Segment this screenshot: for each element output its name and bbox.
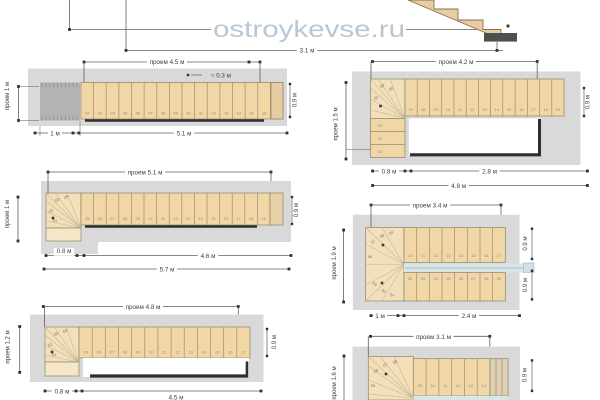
svg-text:5.7 м: 5.7 м — [160, 267, 175, 274]
svg-text:16: 16 — [224, 216, 229, 221]
svg-text:10: 10 — [430, 383, 435, 388]
svg-text:04: 04 — [110, 111, 115, 116]
svg-text:0.9 м: 0.9 м — [523, 278, 529, 292]
svg-text:13: 13 — [482, 107, 487, 112]
svg-text:02: 02 — [378, 136, 383, 141]
svg-text:10: 10 — [446, 107, 451, 112]
svg-text:07: 07 — [471, 276, 476, 281]
svg-text:14: 14 — [459, 253, 464, 258]
svg-text:проем 1 м: проем 1 м — [5, 200, 11, 228]
svg-text:02: 02 — [408, 276, 413, 281]
svg-text:15: 15 — [249, 111, 254, 116]
svg-text:08: 08 — [123, 350, 128, 355]
svg-text:2.4 м: 2.4 м — [462, 313, 477, 320]
svg-text:≈ 0.3 м: ≈ 0.3 м — [211, 73, 231, 80]
svg-text:08: 08 — [161, 111, 166, 116]
svg-text:03: 03 — [421, 276, 426, 281]
svg-text:17: 17 — [497, 253, 502, 258]
svg-text:19: 19 — [261, 216, 266, 221]
svg-text:12: 12 — [470, 107, 475, 112]
svg-text:проем 1.2 м: проем 1.2 м — [6, 330, 12, 363]
svg-text:4.5 м: 4.5 м — [169, 395, 184, 400]
svg-text:09: 09 — [497, 276, 502, 281]
svg-text:4.8 м: 4.8 м — [451, 183, 466, 190]
svg-text:0.9 м: 0.9 м — [293, 93, 299, 107]
svg-text:0.8 м: 0.8 м — [55, 389, 70, 396]
svg-text:18: 18 — [249, 216, 254, 221]
svg-text:проем 1 м: проем 1 м — [5, 82, 11, 110]
svg-text:12: 12 — [456, 383, 461, 388]
svg-text:13: 13 — [189, 350, 194, 355]
svg-text:0.9 м: 0.9 м — [586, 95, 592, 109]
svg-text:09: 09 — [136, 350, 141, 355]
svg-text:13: 13 — [224, 111, 229, 116]
svg-text:08: 08 — [421, 107, 426, 112]
svg-text:06: 06 — [96, 350, 101, 355]
svg-text:проем 1.9 м: проем 1.9 м — [332, 246, 338, 279]
svg-text:проем 1.5 м: проем 1.5 м — [334, 107, 340, 140]
svg-text:10: 10 — [148, 216, 153, 221]
svg-text:05: 05 — [123, 111, 128, 116]
svg-text:12: 12 — [175, 350, 180, 355]
svg-text:1 м: 1 м — [50, 131, 60, 138]
svg-text:16: 16 — [262, 111, 267, 116]
svg-text:03: 03 — [378, 123, 383, 128]
svg-text:01: 01 — [378, 149, 383, 154]
svg-text:05: 05 — [83, 350, 88, 355]
svg-text:08: 08 — [484, 276, 489, 281]
svg-text:09: 09 — [173, 111, 178, 116]
svg-text:10: 10 — [149, 350, 154, 355]
svg-text:10: 10 — [186, 111, 191, 116]
svg-text:проем 4.8 м: проем 4.8 м — [126, 304, 161, 311]
svg-text:проем 3.1 м: проем 3.1 м — [416, 334, 451, 341]
svg-text:0.9 м: 0.9 м — [523, 368, 529, 382]
svg-text:4.6 м: 4.6 м — [201, 253, 216, 260]
svg-text:04: 04 — [433, 276, 438, 281]
svg-text:07: 07 — [110, 216, 115, 221]
svg-text:15: 15 — [211, 216, 216, 221]
svg-text:12: 12 — [173, 216, 178, 221]
svg-text:09: 09 — [417, 383, 422, 388]
svg-text:10: 10 — [408, 253, 413, 258]
svg-text:05: 05 — [446, 276, 451, 281]
svg-text:проем 1.6 м: проем 1.6 м — [332, 366, 338, 399]
svg-text:5.1 м: 5.1 м — [177, 131, 192, 138]
svg-text:14: 14 — [481, 383, 486, 388]
svg-text:0.9 м: 0.9 м — [523, 236, 529, 250]
svg-text:0.9 м: 0.9 м — [272, 335, 278, 349]
svg-text:06: 06 — [98, 216, 103, 221]
svg-text:14: 14 — [494, 107, 499, 112]
svg-text:проем 4.2 м: проем 4.2 м — [439, 59, 474, 66]
svg-text:12: 12 — [211, 111, 216, 116]
svg-text:07: 07 — [110, 350, 115, 355]
svg-text:02: 02 — [85, 111, 90, 116]
svg-text:0.8 м: 0.8 м — [57, 248, 72, 255]
svg-text:0.9 м: 0.9 м — [294, 203, 300, 217]
svg-text:14: 14 — [202, 350, 207, 355]
svg-text:05: 05 — [371, 383, 376, 388]
svg-text:проем 4.5 м: проем 4.5 м — [150, 59, 185, 66]
svg-text:1 м: 1 м — [375, 313, 385, 320]
svg-text:16: 16 — [228, 350, 233, 355]
svg-text:07: 07 — [409, 107, 414, 112]
svg-text:17: 17 — [236, 216, 241, 221]
svg-text:15: 15 — [215, 350, 220, 355]
svg-text:проем 5.1 м: проем 5.1 м — [128, 170, 163, 177]
svg-text:проем 3.4 м: проем 3.4 м — [413, 203, 448, 210]
svg-text:13: 13 — [446, 253, 451, 258]
svg-text:07: 07 — [148, 111, 153, 116]
svg-text:15: 15 — [507, 107, 512, 112]
svg-text:09: 09 — [135, 216, 140, 221]
svg-text:17: 17 — [241, 350, 246, 355]
svg-text:3.1 м: 3.1 м — [300, 48, 315, 55]
svg-text:09: 09 — [433, 107, 438, 112]
svg-text:13: 13 — [186, 216, 191, 221]
svg-text:0.8 м: 0.8 м — [382, 169, 397, 176]
svg-text:15: 15 — [471, 253, 476, 258]
svg-text:06: 06 — [136, 111, 141, 116]
svg-text:06: 06 — [459, 276, 464, 281]
svg-text:17: 17 — [531, 107, 536, 112]
svg-text:05: 05 — [85, 216, 90, 221]
svg-text:19: 19 — [556, 107, 561, 112]
svg-text:16: 16 — [484, 253, 489, 258]
svg-text:ostroykevse.ru: ostroykevse.ru — [213, 16, 405, 42]
svg-text:03: 03 — [98, 111, 103, 116]
svg-text:16: 16 — [519, 107, 524, 112]
svg-text:13: 13 — [469, 383, 474, 388]
svg-text:08: 08 — [123, 216, 128, 221]
svg-text:18: 18 — [543, 107, 548, 112]
svg-text:14: 14 — [237, 111, 242, 116]
svg-text:06: 06 — [368, 254, 373, 259]
svg-text:2.8 м: 2.8 м — [482, 169, 497, 176]
svg-text:14: 14 — [198, 216, 203, 221]
svg-text:12: 12 — [433, 253, 438, 258]
